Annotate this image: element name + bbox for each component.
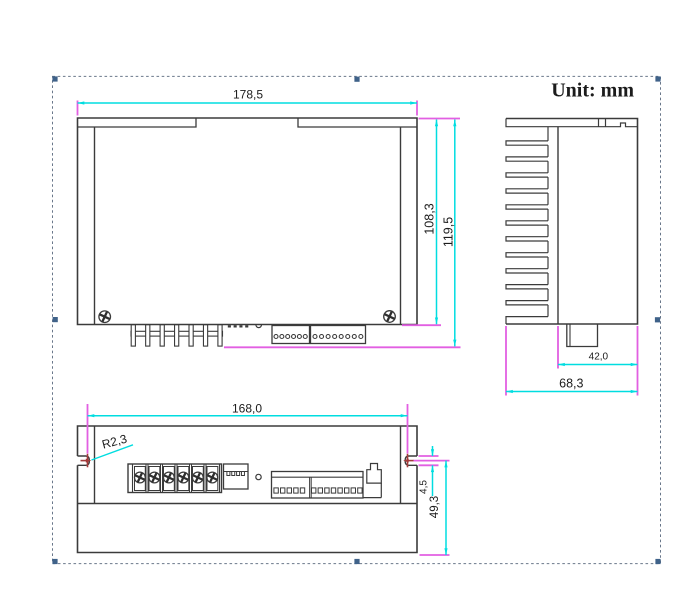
svg-text:108,3: 108,3 bbox=[423, 203, 437, 234]
svg-text:Unit: mm: Unit: mm bbox=[551, 80, 634, 102]
svg-text:168,0: 168,0 bbox=[232, 401, 262, 415]
svg-text:119,5: 119,5 bbox=[442, 217, 456, 247]
svg-text:49,3: 49,3 bbox=[429, 496, 441, 518]
svg-text:178,5: 178,5 bbox=[233, 87, 263, 101]
svg-text:42,0: 42,0 bbox=[589, 352, 609, 363]
svg-text:68,3: 68,3 bbox=[559, 376, 583, 390]
svg-text:4,5: 4,5 bbox=[419, 480, 430, 494]
